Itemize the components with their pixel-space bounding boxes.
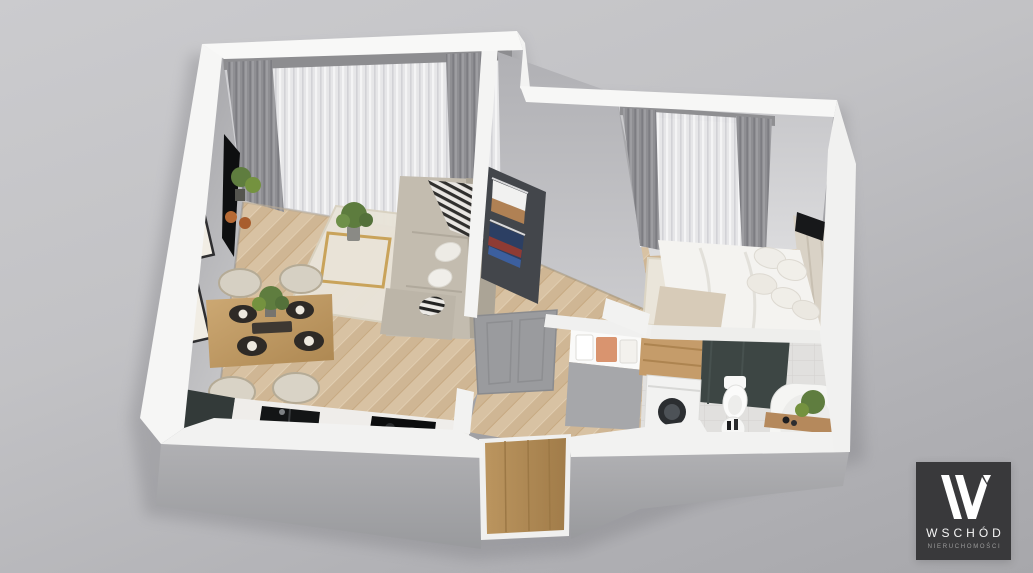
sofa-chaise [380,288,456,340]
door-grain [505,441,506,532]
centerpiece-plant-2 [252,297,266,311]
towel-white [576,335,593,360]
door-grain-2 [528,440,529,531]
shelf-plant-2 [245,177,261,193]
bath-candle-2 [791,420,797,426]
entrance-door [479,434,571,540]
plate-4 [304,336,314,346]
wschod-logo: WSCHÓD NIERUCHOMOŚCI [916,462,1011,560]
logo-tagline-text: NIERUCHOMOŚCI [928,544,1002,550]
door-grain-3 [549,439,550,530]
shelf-cabinet-front [565,362,643,430]
coffee-table-plant-pot [347,226,360,241]
table-runner [252,321,293,334]
dining-chair-top-left [219,269,261,297]
logo-brand-text: WSCHÓD [926,526,1005,540]
coffee-table-plant-3 [359,213,373,227]
plant-pot [235,189,245,201]
kitchen-faucet [279,409,285,415]
towel-white-2 [620,340,637,363]
wschod-logo-w-icon [937,475,991,519]
washing-machine-door-inner [664,404,680,420]
floorplan-render [0,0,1033,573]
dining-chair-top-right [280,265,322,293]
bedroom-drape-right [736,116,772,254]
cosmetic-bottle-2 [734,419,738,430]
bath-plant-2 [795,403,809,417]
towel-shelf-unit [565,329,645,430]
coffee-table-plant-2 [336,214,350,228]
dining-chair-bottom-right [273,373,319,403]
copper-decor [225,211,237,223]
plate [239,310,248,319]
entrance-door-leaf [485,438,566,534]
coffee-table-glass [321,233,390,287]
bath-candle [783,417,790,424]
plate-2 [296,306,305,315]
centerpiece-plant-3 [275,296,289,310]
plate-3 [247,341,257,351]
copper-decor-2 [239,217,251,229]
storage-box-peach [596,337,617,362]
cosmetic-bottle [727,421,731,430]
